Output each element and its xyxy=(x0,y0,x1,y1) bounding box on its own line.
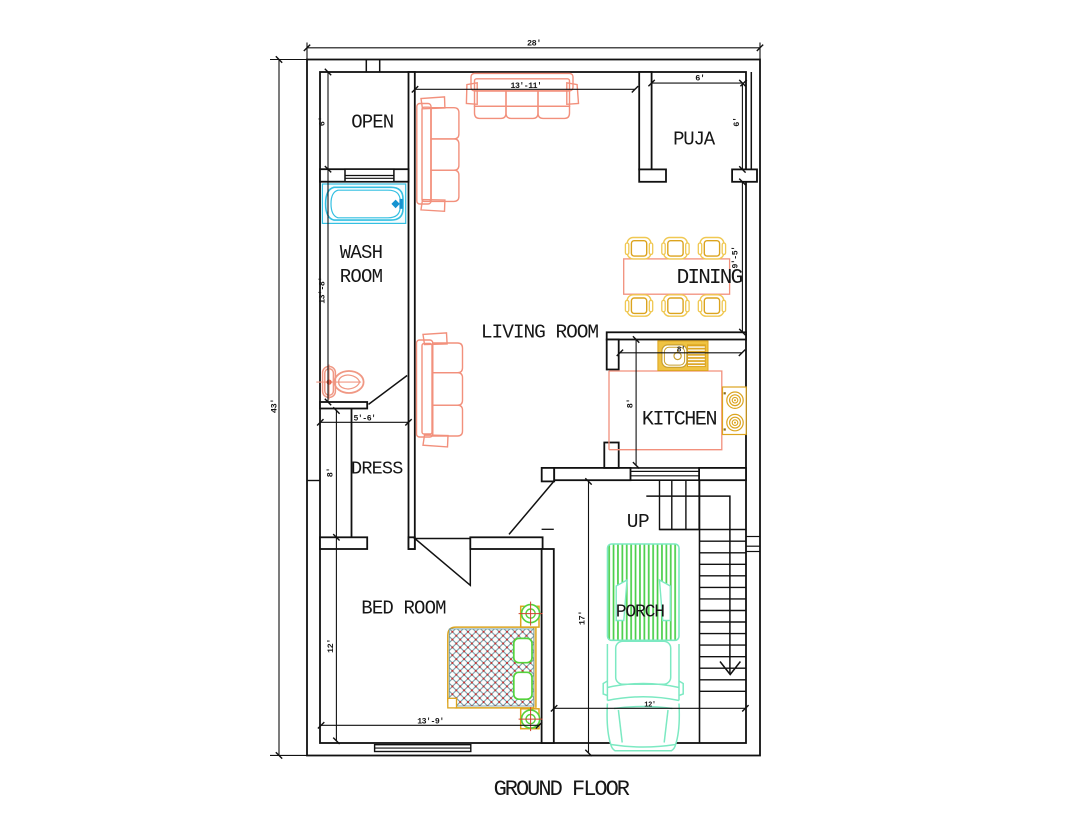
svg-text:6': 6' xyxy=(318,117,328,126)
svg-text:6': 6' xyxy=(732,117,742,126)
svg-text:12': 12' xyxy=(326,639,336,653)
svg-text:9'-5': 9'-5' xyxy=(730,246,740,268)
svg-text:UP: UP xyxy=(627,511,649,533)
svg-text:12': 12' xyxy=(644,702,655,710)
svg-text:17': 17' xyxy=(578,611,588,625)
svg-text:DRESS: DRESS xyxy=(351,458,403,479)
svg-text:BED ROOM: BED ROOM xyxy=(361,597,446,619)
svg-text:28': 28' xyxy=(527,39,541,49)
svg-text:GROUND FLOOR: GROUND FLOOR xyxy=(494,777,630,802)
svg-text:8': 8' xyxy=(677,346,685,354)
svg-text:KITCHEN: KITCHEN xyxy=(642,409,717,432)
svg-text:13'-9': 13'-9' xyxy=(417,716,443,726)
svg-text:WASH: WASH xyxy=(340,242,382,264)
svg-text:8': 8' xyxy=(625,399,635,408)
svg-text:PUJA: PUJA xyxy=(673,129,716,151)
svg-text:LIVING ROOM: LIVING ROOM xyxy=(481,322,599,344)
svg-text:8': 8' xyxy=(325,468,335,477)
svg-text:DINING: DINING xyxy=(677,267,743,290)
svg-text:6': 6' xyxy=(695,74,704,84)
svg-text:ROOM: ROOM xyxy=(340,266,383,288)
svg-text:13'-11': 13'-11' xyxy=(511,81,542,91)
svg-text:PORCH: PORCH xyxy=(616,603,664,623)
svg-text:13'-8': 13'-8' xyxy=(318,277,328,303)
svg-text:5'-6': 5'-6' xyxy=(353,413,375,423)
svg-text:OPEN: OPEN xyxy=(351,112,393,134)
svg-text:43': 43' xyxy=(270,399,280,413)
